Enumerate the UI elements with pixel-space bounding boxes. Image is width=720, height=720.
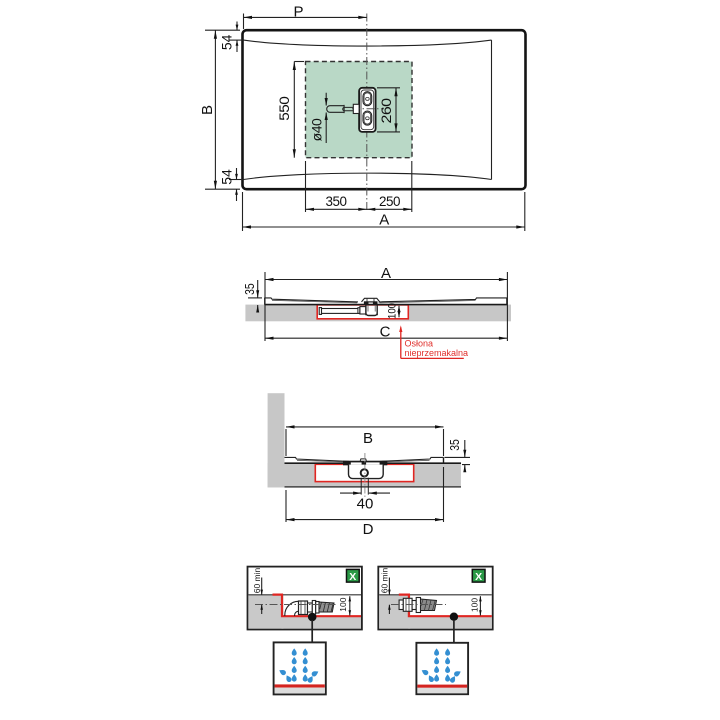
- svg-text:550: 550: [276, 96, 292, 121]
- svg-text:P: P: [293, 3, 303, 20]
- svg-text:100: 100: [386, 303, 398, 319]
- svg-text:100: 100: [469, 598, 479, 612]
- svg-text:B: B: [363, 430, 373, 447]
- svg-text:60 min: 60 min: [380, 567, 390, 593]
- svg-text:35: 35: [242, 283, 257, 295]
- svg-text:35: 35: [447, 439, 462, 451]
- svg-text:X: X: [475, 571, 482, 583]
- svg-text:54: 54: [218, 169, 234, 185]
- svg-text:40: 40: [357, 496, 374, 513]
- svg-text:A: A: [381, 265, 391, 282]
- svg-text:C: C: [380, 324, 391, 341]
- svg-text:60 min: 60 min: [252, 567, 262, 593]
- svg-text:54: 54: [218, 34, 234, 50]
- svg-text:X: X: [349, 571, 356, 583]
- svg-text:100: 100: [338, 597, 348, 611]
- svg-text:ø40: ø40: [309, 118, 325, 141]
- svg-text:nieprzemakalna: nieprzemakalna: [405, 348, 469, 358]
- svg-text:260: 260: [378, 98, 394, 124]
- svg-text:350: 350: [326, 193, 348, 209]
- svg-text:B: B: [199, 105, 216, 115]
- svg-text:250: 250: [379, 193, 401, 209]
- svg-text:Osłona: Osłona: [405, 339, 434, 349]
- svg-text:A: A: [379, 212, 389, 229]
- svg-text:D: D: [363, 521, 374, 538]
